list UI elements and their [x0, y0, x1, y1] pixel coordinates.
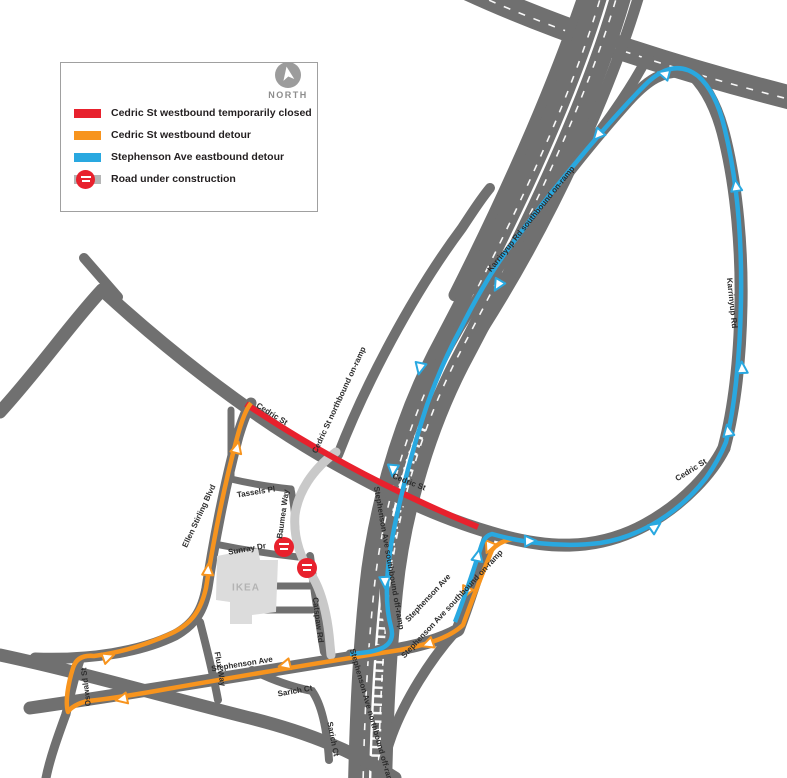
ikea-building	[216, 548, 278, 624]
construction-roads-layer	[295, 452, 336, 655]
construction-marker-icon	[76, 170, 95, 189]
legend-row-stephenson-detour: Stephenson Ave eastbound detour	[74, 151, 284, 163]
north-indicator: NORTH	[258, 62, 318, 100]
legend-label: Cedric St westbound temporarily closed	[111, 107, 312, 119]
legend-label: Cedric St westbound detour	[111, 129, 251, 141]
legend-row-cedric-detour: Cedric St westbound detour	[74, 129, 251, 141]
mitchell-fwy	[370, 0, 612, 778]
ellen-stirling-road	[35, 403, 251, 658]
construction-marker-icon	[297, 558, 317, 578]
construction-marker-icon	[274, 537, 294, 557]
cedric-west-continuation	[0, 290, 102, 412]
tassels-pl-road	[231, 479, 291, 489]
oswald-south-curve	[46, 714, 66, 778]
construction-swatch	[74, 175, 101, 184]
legend-row-construction: Road under construction	[74, 173, 236, 185]
stephenson-detour-swatch	[74, 153, 101, 162]
legend-label: Road under construction	[111, 173, 236, 185]
legend-row-closed: Cedric St westbound temporarily closed	[74, 107, 312, 119]
detour-map: Cedric St Cedric St Cedric St Karrinyup …	[0, 0, 787, 778]
lower-road	[0, 655, 395, 778]
construction-road	[295, 452, 336, 655]
legend-label: Stephenson Ave eastbound detour	[111, 151, 284, 163]
flux-way-road	[200, 622, 218, 700]
north-label: NORTH	[258, 90, 318, 100]
cedric-detour-swatch	[74, 131, 101, 140]
north-arrow-icon	[275, 62, 301, 88]
closed-swatch	[74, 109, 101, 118]
